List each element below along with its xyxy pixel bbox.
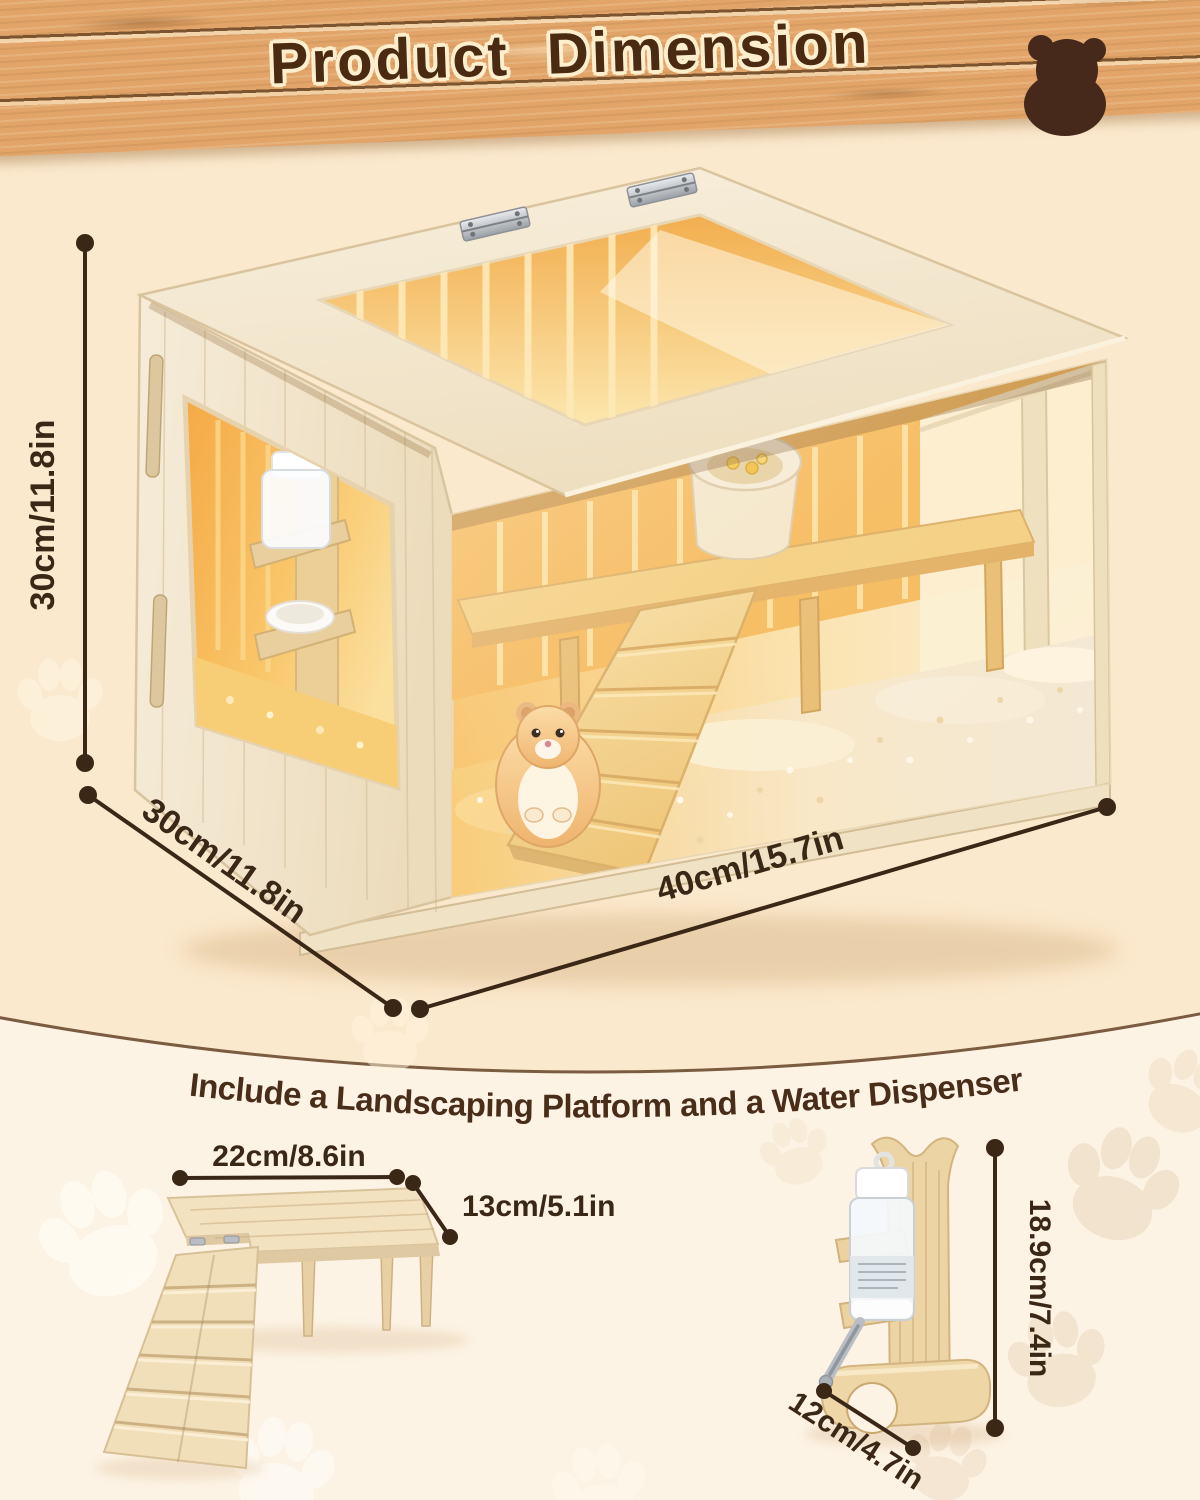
dispenser-illustration bbox=[805, 1138, 1005, 1447]
paw-print-icon bbox=[1043, 1113, 1196, 1257]
platform-width-label: 22cm/8.6in bbox=[212, 1140, 365, 1173]
platform-depth-dimension: 13cm/5.1in bbox=[405, 1175, 615, 1245]
paw-print-icon bbox=[543, 1438, 657, 1500]
dispenser-height-label: 18.9cm/7.4in bbox=[1023, 1199, 1056, 1377]
platform-depth-label: 13cm/5.1in bbox=[462, 1190, 615, 1223]
infographic-canvas: 30cm/11.8in 30cm/11.8in 40cm/15.7in Incl… bbox=[0, 0, 1200, 1500]
paw-print-icon bbox=[1126, 1035, 1200, 1148]
platform-width-dimension: 22cm/8.6in bbox=[172, 1140, 405, 1186]
paw-print-icon bbox=[751, 1111, 840, 1194]
paw-print-icon bbox=[997, 1304, 1118, 1415]
cage-height-label: 30cm/11.8in bbox=[24, 420, 62, 611]
product-dimension-infographic: 30cm/11.8in 30cm/11.8in 40cm/15.7in Incl… bbox=[0, 0, 1200, 1500]
